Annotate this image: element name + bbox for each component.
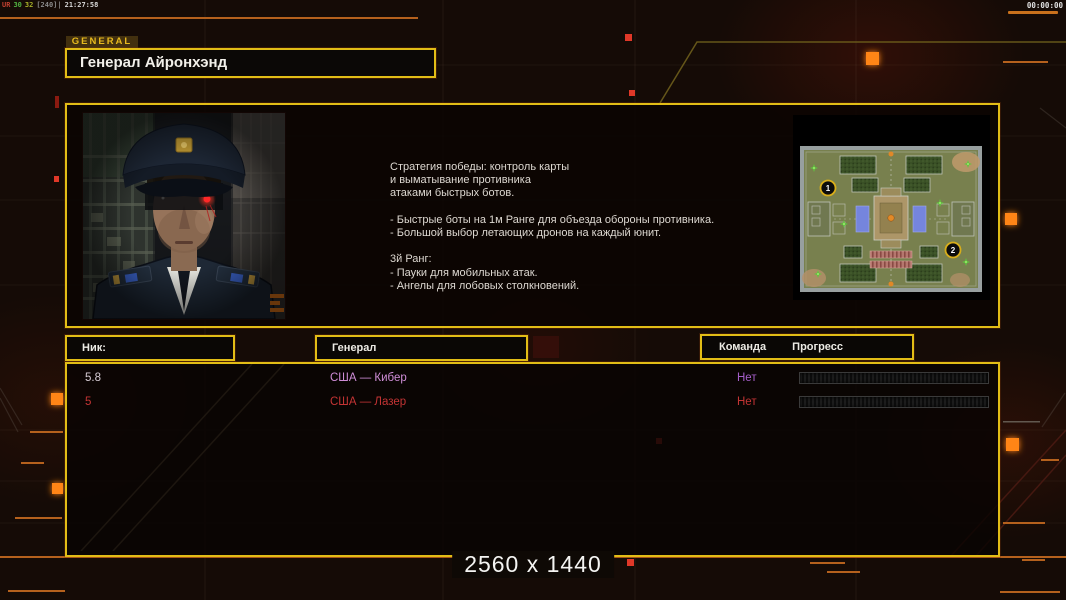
player-team: Нет (737, 366, 757, 390)
player-general: США — Лазер (330, 390, 406, 414)
match-timer: 00:00:00 (1027, 1, 1063, 10)
minimap-panel: 1 2 (793, 115, 990, 300)
player-progress-bar (799, 396, 989, 408)
perf-clock: 21:27:58 (65, 1, 99, 9)
team-header-label: Команда (719, 341, 766, 353)
minimap: 1 2 (800, 146, 982, 292)
player-row[interactable]: 5 США — Лазер Нет (67, 390, 994, 414)
svg-text:2: 2 (951, 246, 956, 255)
player-team: Нет (737, 390, 757, 414)
general-tab[interactable]: GENERAL (66, 36, 138, 48)
minimap-marker-2: 2 (946, 243, 961, 258)
general-name-box: Генерал Айронхэнд (65, 48, 436, 78)
column-header-nick: Ник: (65, 335, 235, 361)
general-portrait-image (83, 113, 285, 319)
progress-header-label: Прогресс (792, 341, 843, 353)
general-portrait (82, 112, 286, 320)
minimap-marker-1: 1 (821, 181, 836, 196)
player-nick: 5.8 (85, 366, 101, 390)
perf-segment: 32 (25, 1, 33, 9)
perf-segment: UR (2, 1, 10, 9)
player-row[interactable]: 5.8 США — Кибер Нет (67, 366, 994, 390)
general-header-label: Генерал (332, 342, 376, 354)
general-name: Генерал Айронхэнд (67, 50, 434, 76)
player-progress-bar (799, 372, 989, 384)
timer-underline (1008, 11, 1058, 14)
perf-segment: 30 (13, 1, 21, 9)
general-description: Стратегия победы: контроль карты и вымат… (390, 161, 735, 293)
column-header-general: Генерал (315, 335, 528, 361)
column-header-team-progress: Команда Прогресс (700, 334, 914, 360)
performance-stats: UR3032[240]|21:27:58 (2, 1, 101, 9)
players-panel: 5.8 США — Кибер Нет 5 США — Лазер Нет (65, 362, 1000, 557)
perf-segment: [240]| (36, 1, 61, 9)
nick-header-label: Ник: (82, 342, 106, 354)
general-info-panel: Стратегия победы: контроль карты и вымат… (65, 103, 1000, 328)
svg-text:1: 1 (826, 184, 831, 193)
game-screen: UR3032[240]|21:27:58 00:00:00 GENERAL Ге… (0, 0, 1066, 600)
player-nick: 5 (85, 390, 91, 414)
resolution-label: 2560 x 1440 (452, 551, 614, 578)
player-general: США — Кибер (330, 366, 407, 390)
